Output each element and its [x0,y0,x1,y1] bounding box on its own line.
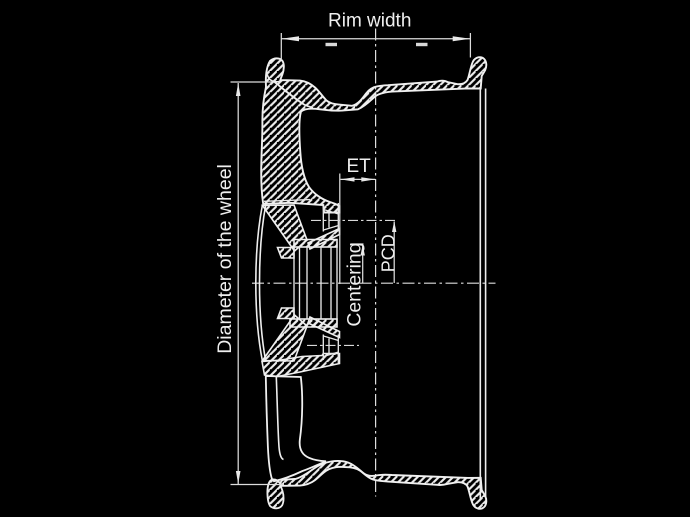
svg-text:ET: ET [347,156,372,177]
svg-text:PCD: PCD [379,234,399,272]
svg-text:Diameter of the wheel: Diameter of the wheel [214,164,236,354]
svg-text:Centering: Centering [344,243,366,327]
svg-text:Rim width: Rim width [328,11,411,32]
